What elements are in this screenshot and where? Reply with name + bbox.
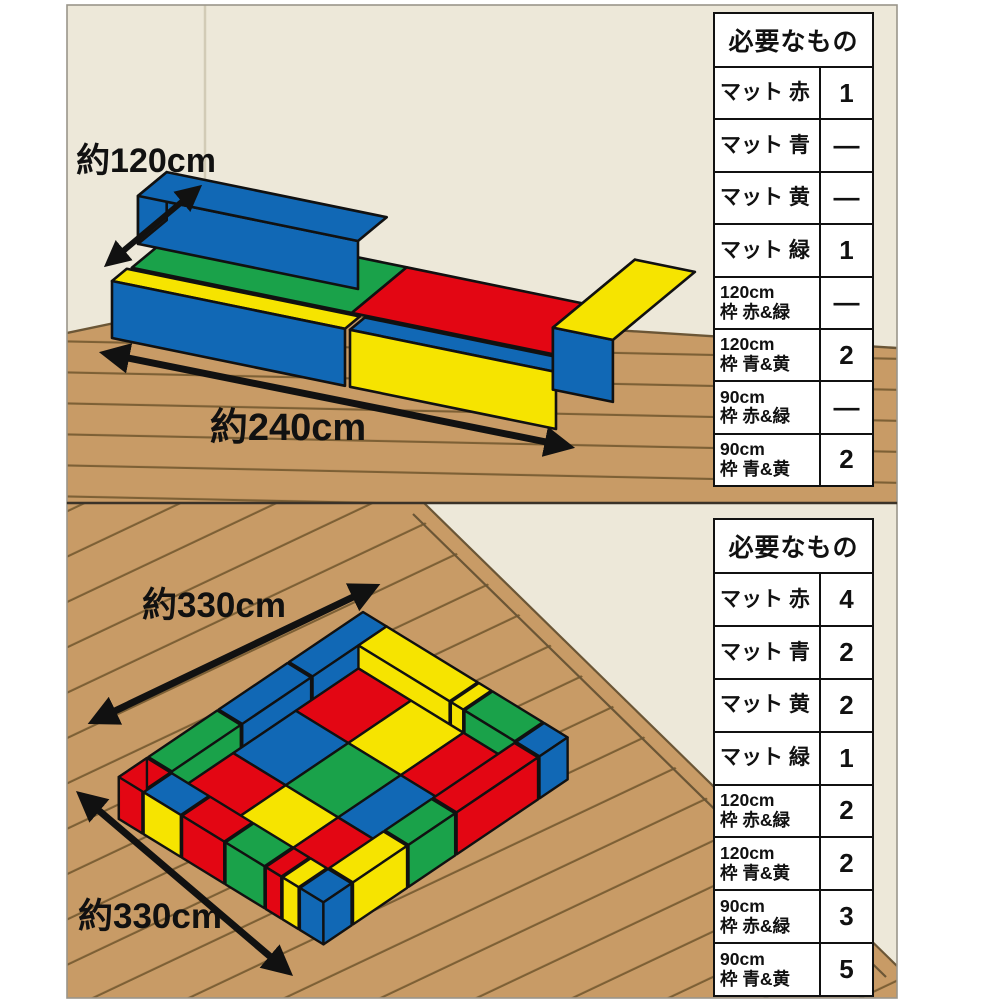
side-left-dimension-label: 約330cm xyxy=(78,897,222,936)
item-label: マット 青 xyxy=(720,134,819,158)
item-label: 120cm xyxy=(720,844,819,864)
table-row: 90cm枠 赤&緑 — xyxy=(715,380,872,432)
side-top-dimension-label: 約330cm xyxy=(142,586,286,625)
item-label-2: 枠 赤&緑 xyxy=(720,303,819,323)
item-qty: 2 xyxy=(821,627,872,678)
table-row: 120cm枠 青&黄 2 xyxy=(715,836,872,889)
item-label-2: 枠 青&黄 xyxy=(720,460,819,480)
item-label-2: 枠 赤&緑 xyxy=(720,811,819,831)
width-dimension-label: 約120cm xyxy=(76,142,216,180)
item-label-2: 枠 青&黄 xyxy=(720,970,819,990)
table-row: 120cm枠 青&黄 2 xyxy=(715,328,872,380)
table-row: マット 赤 1 xyxy=(715,66,872,118)
item-label: マット 赤 xyxy=(720,81,819,105)
item-qty: — xyxy=(821,278,872,328)
table-row: マット 緑 1 xyxy=(715,223,872,275)
table-row: マット 赤 4 xyxy=(715,572,872,625)
item-label: 120cm xyxy=(720,283,819,303)
item-label: 90cm xyxy=(720,897,819,917)
item-qty: — xyxy=(821,120,872,170)
item-label: マット 黄 xyxy=(720,186,819,210)
item-qty: 2 xyxy=(821,680,872,731)
item-label: 120cm xyxy=(720,791,819,811)
item-qty: 2 xyxy=(821,838,872,889)
table-row: 90cm枠 赤&緑 3 xyxy=(715,889,872,942)
table-title: 必要なもの xyxy=(715,14,872,66)
table-row: マット 黄 — xyxy=(715,171,872,223)
table-row: 120cm枠 赤&緑 — xyxy=(715,276,872,328)
item-label-2: 枠 赤&緑 xyxy=(720,407,819,427)
table-row: 90cm枠 青&黄 2 xyxy=(715,433,872,485)
item-label: マット 青 xyxy=(720,641,819,665)
item-qty: 1 xyxy=(821,225,872,275)
item-qty: 4 xyxy=(821,574,872,625)
item-label: 90cm xyxy=(720,440,819,460)
item-label: 90cm xyxy=(720,950,819,970)
item-qty: 5 xyxy=(821,944,872,995)
item-label: マット 緑 xyxy=(720,746,819,770)
item-label: マット 黄 xyxy=(720,693,819,717)
item-label-2: 枠 青&黄 xyxy=(720,864,819,884)
item-qty: — xyxy=(821,382,872,432)
table-row: マット 黄 2 xyxy=(715,678,872,731)
item-label: マット 緑 xyxy=(720,239,819,263)
item-label: 120cm xyxy=(720,335,819,355)
item-qty: 2 xyxy=(821,435,872,485)
item-label: マット 赤 xyxy=(720,588,819,612)
product-diagram: 約120cm 約240cm xyxy=(0,0,1000,1000)
item-label: 90cm xyxy=(720,388,819,408)
item-label-2: 枠 赤&緑 xyxy=(720,917,819,937)
table-row: マット 青 — xyxy=(715,118,872,170)
table-row: マット 緑 1 xyxy=(715,731,872,784)
item-qty: — xyxy=(821,173,872,223)
required-items-table-bottom: 必要なもの マット 赤 4 マット 青 2 マット 黄 2 マット 緑 1 12… xyxy=(713,518,874,997)
item-qty: 1 xyxy=(821,733,872,784)
length-dimension-label: 約240cm xyxy=(210,407,366,449)
item-qty: 2 xyxy=(821,786,872,837)
required-items-table-top: 必要なもの マット 赤 1 マット 青 — マット 黄 — マット 緑 1 12… xyxy=(713,12,874,487)
item-label-2: 枠 青&黄 xyxy=(720,355,819,375)
item-qty: 1 xyxy=(821,68,872,118)
table-title: 必要なもの xyxy=(715,520,872,572)
item-qty: 3 xyxy=(821,891,872,942)
table-row: 90cm枠 青&黄 5 xyxy=(715,942,872,995)
table-row: 120cm枠 赤&緑 2 xyxy=(715,784,872,837)
item-qty: 2 xyxy=(821,330,872,380)
table-row: マット 青 2 xyxy=(715,625,872,678)
